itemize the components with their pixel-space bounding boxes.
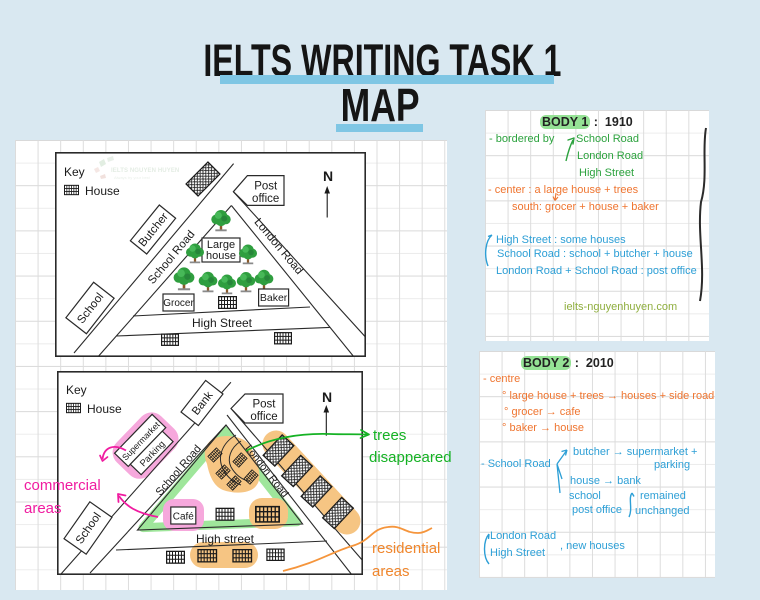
svg-text:N: N — [322, 389, 332, 405]
svg-text:Always try your best: Always try your best — [114, 175, 151, 180]
svg-text:Grocer: Grocer — [163, 298, 194, 309]
svg-text:House: House — [87, 402, 122, 416]
svg-text:Café: Café — [173, 512, 195, 523]
svg-text:Post: Post — [254, 181, 278, 193]
svg-text:Key: Key — [64, 165, 85, 179]
svg-text:Baker: Baker — [260, 292, 288, 304]
svg-text:house: house — [206, 250, 236, 262]
svg-text:Key: Key — [66, 383, 87, 397]
svg-text:House: House — [85, 184, 120, 198]
svg-text:High Street: High Street — [192, 316, 253, 330]
svg-text:office: office — [250, 411, 277, 423]
svg-text:N: N — [323, 168, 333, 184]
svg-text:office: office — [252, 193, 279, 205]
svg-text:IELTS NGUYEN HUYEN: IELTS NGUYEN HUYEN — [111, 168, 179, 174]
svg-text:High street: High street — [196, 532, 255, 546]
svg-text:Post: Post — [252, 399, 276, 411]
